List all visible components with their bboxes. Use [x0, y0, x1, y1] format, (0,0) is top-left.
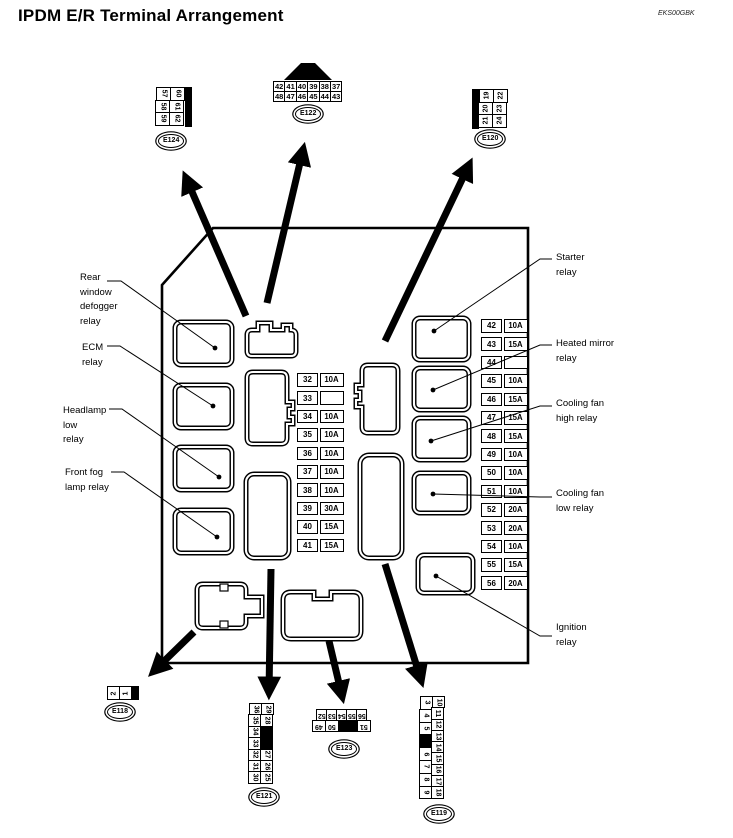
fuse-amp-rating: 10A — [504, 540, 528, 554]
ipdm-terminal-arrangement-diagram: IPDM E/R Terminal Arrangement EKS00GBK R… — [0, 0, 733, 838]
fuse-row: 5515A — [481, 558, 528, 572]
label-line: relay — [82, 356, 103, 371]
connector-e123-pin-grid: 5253545556 495051 — [312, 709, 371, 732]
e122-keyway-wedge — [284, 63, 332, 80]
fuse-amp-rating: 10A — [320, 373, 344, 387]
fuse-amp-rating: 10A — [320, 465, 344, 479]
fuse-number: 50 — [481, 466, 502, 480]
label-line: relay — [556, 352, 614, 367]
label-ecm-relay: ECMrelay — [82, 341, 103, 370]
fuse-number: 32 — [297, 373, 318, 387]
fuse-number: 56 — [481, 576, 502, 590]
fuse-amp-rating: 30A — [320, 502, 344, 516]
e123-row-bottom: 495051 — [312, 720, 371, 732]
fuse-number: 53 — [481, 521, 502, 535]
fuse-number: 39 — [297, 502, 318, 516]
fuse-number: 48 — [481, 429, 502, 443]
label-line: relay — [80, 315, 118, 330]
fuse-row: 3810A — [297, 483, 344, 497]
socket-top-center — [247, 323, 296, 356]
label-cooling-fan-high-relay: Cooling fanhigh relay — [556, 397, 604, 426]
relay-starter — [414, 318, 469, 360]
connector-label-e123: E123 — [331, 742, 357, 756]
fuse-amp-rating: 10A — [320, 447, 344, 461]
pin-cell: 19 — [479, 89, 494, 103]
fuse-amp-rating: 10A — [320, 428, 344, 442]
fuse-amp-rating: 10A — [504, 485, 528, 499]
label-line: Heated mirror — [556, 337, 614, 352]
fuse-row: 4715A — [481, 411, 528, 425]
label-line: Ignition — [556, 621, 587, 636]
fuse-row: 4510A — [481, 374, 528, 388]
connector-e118-pin-grid: 21 — [107, 686, 139, 700]
pin-cell: 24 — [492, 114, 507, 128]
fuse-row: 5010A — [481, 466, 528, 480]
arrow-to-e121 — [269, 569, 271, 692]
fuse-row: 4815A — [481, 429, 528, 443]
socket-left-keyed — [247, 372, 293, 444]
fuse-number: 36 — [297, 447, 318, 461]
leader-front-fog — [111, 472, 219, 539]
relay-ignition — [418, 555, 473, 593]
label-line: Rear — [80, 271, 118, 286]
e119-col-right: 101112131415161718 — [432, 696, 445, 799]
fuse-amp-rating: 10A — [320, 483, 344, 497]
pin-cell: 18 — [431, 786, 444, 798]
arrow-to-e123 — [329, 641, 342, 696]
keyway-cell — [260, 726, 273, 750]
fuse-amp-rating: 10A — [504, 374, 528, 388]
fuse-row: 3410A — [297, 410, 344, 424]
relay-ecm — [175, 385, 232, 428]
fuse-amp-rating: 15A — [504, 411, 528, 425]
leader-ecm — [107, 346, 215, 408]
relay-heated-mirror — [414, 368, 469, 410]
fuse-amp-rating: 15A — [504, 337, 528, 351]
label-rear-window-defogger-relay: Rearwindowdefoggerrelay — [80, 271, 118, 329]
pin-cell: 60 — [170, 87, 185, 101]
socket-bottom-center — [283, 592, 361, 639]
fuse-row: 3210A — [297, 373, 344, 387]
relay-cooling-fan-high — [414, 418, 469, 460]
connector-label-e119: E119 — [426, 807, 452, 821]
fuse-number: 55 — [481, 558, 502, 572]
fuse-amp-rating: 10A — [504, 466, 528, 480]
fuse-row: 4210A — [481, 319, 528, 333]
e124-keyway-bar — [185, 87, 192, 127]
fuse-amp-rating: 20A — [504, 576, 528, 590]
connector-label-e121: E121 — [251, 790, 277, 804]
arrow-to-e124 — [186, 178, 246, 316]
socket-bottom-left — [197, 584, 262, 628]
label-line: Starter — [556, 251, 585, 266]
fuse-row: 5320A — [481, 521, 528, 535]
pin-cell: 62 — [169, 112, 184, 126]
fuse-amp-rating: 15A — [320, 539, 344, 553]
fuse-row: 4315A — [481, 337, 528, 351]
e121-col-right: 2928272625 — [261, 703, 274, 784]
fuse-number: 52 — [481, 503, 502, 517]
fuse-row: 5410A — [481, 540, 528, 554]
label-starter-relay: Starterrelay — [556, 251, 585, 280]
fuse-amp-rating: 15A — [504, 558, 528, 572]
socket-right-tall — [360, 455, 402, 558]
fuse-row: 3610A — [297, 447, 344, 461]
connector-e124-pin-grid: 575859 606162 — [156, 87, 192, 127]
fuse-number: 38 — [297, 483, 318, 497]
label-front-fog-lamp-relay: Front foglamp relay — [65, 466, 109, 495]
e124-col-right: 606162 — [170, 87, 185, 126]
fuse-amp-rating: 15A — [504, 393, 528, 407]
pin-cell: 59 — [155, 112, 170, 126]
fuse-amp-rating: 15A — [320, 520, 344, 534]
fuse-number: 34 — [297, 410, 318, 424]
pin-cell: 21 — [478, 114, 493, 128]
fuse-row: 3710A — [297, 465, 344, 479]
fuse-number: 51 — [481, 485, 502, 499]
fuse-amp-rating: 20A — [504, 503, 528, 517]
relay-rear-window-defogger — [175, 322, 232, 365]
doc-code: EKS00GBK — [658, 10, 695, 17]
relay-front-fog-lamp — [175, 510, 232, 553]
keyway-cell — [131, 686, 139, 700]
pin-cell: 43 — [330, 91, 342, 102]
label-headlamp-low-relay: Headlamplowrelay — [63, 404, 106, 448]
fuse-number: 45 — [481, 374, 502, 388]
fuse-number: 54 — [481, 540, 502, 554]
label-ignition-relay: Ignitionrelay — [556, 621, 587, 650]
relay-cooling-fan-low — [414, 473, 469, 513]
fuse-amp-rating — [504, 356, 528, 370]
label-line: low relay — [556, 502, 604, 517]
connector-e120-pin-grid: 192021 222324 — [472, 89, 508, 129]
leader-headlamp-low — [109, 409, 221, 479]
connector-label-e124: E124 — [158, 134, 184, 148]
fuse-number: 46 — [481, 393, 502, 407]
fuse-row: 3510A — [297, 428, 344, 442]
label-line: relay — [556, 636, 587, 651]
label-cooling-fan-low-relay: Cooling fanlow relay — [556, 487, 604, 516]
connector-label-e120: E120 — [477, 132, 503, 146]
fuse-table-left: 3210A333410A3510A3610A3710A3810A3930A401… — [297, 373, 344, 557]
leader-rear-window-defogger — [107, 281, 217, 350]
fuse-row: 5110A — [481, 485, 528, 499]
keyway-cell — [338, 720, 358, 732]
pin-cell: 51 — [357, 720, 371, 732]
connector-e119-pin-grid: 3456789 101112131415161718 — [420, 696, 445, 799]
label-line: ECM — [82, 341, 103, 356]
label-line: Cooling fan — [556, 397, 604, 412]
pin-cell: 23 — [492, 102, 507, 116]
fuse-number: 40 — [297, 520, 318, 534]
pin-cell: 50 — [325, 720, 339, 732]
pin-cell: 20 — [478, 102, 493, 116]
page-title: IPDM E/R Terminal Arrangement — [18, 6, 284, 26]
label-line: high relay — [556, 412, 604, 427]
fuse-amp-rating — [320, 391, 344, 405]
fuse-row: 3930A — [297, 502, 344, 516]
fuse-amp-rating: 10A — [504, 448, 528, 462]
pin-cell: 25 — [260, 771, 273, 783]
socket-left-tall — [246, 474, 289, 558]
fuse-number: 44 — [481, 356, 502, 370]
fuse-row: 4015A — [297, 520, 344, 534]
pin-cell: 49 — [312, 720, 326, 732]
relay-headlamp-low — [175, 447, 232, 490]
fuse-number: 35 — [297, 428, 318, 442]
arrow-to-e122 — [267, 150, 303, 303]
pin-cell: 61 — [169, 100, 184, 114]
e122-row-bottom: 484746454443 — [273, 91, 342, 102]
fuse-row: 5220A — [481, 503, 528, 517]
connector-label-e118: E118 — [107, 705, 133, 719]
fuse-number: 47 — [481, 411, 502, 425]
arrow-to-e120 — [385, 165, 469, 341]
e120-col-right: 222324 — [493, 89, 508, 128]
fuse-amp-rating: 10A — [320, 410, 344, 424]
socket-right-keyed — [356, 365, 398, 433]
fuse-row: 4910A — [481, 448, 528, 462]
label-line: Cooling fan — [556, 487, 604, 502]
label-line: Headlamp — [63, 404, 106, 419]
fuse-row: 44 — [481, 356, 528, 370]
connector-e121-pin-grid: 36353433323130 2928272625 — [249, 703, 274, 784]
label-line: lamp relay — [65, 481, 109, 496]
fuse-table-right: 4210A4315A444510A4615A4715A4815A4910A501… — [481, 319, 528, 595]
connector-label-e122: E122 — [295, 107, 321, 121]
label-line: Front fog — [65, 466, 109, 481]
arrow-to-e119 — [385, 564, 421, 680]
fuse-number: 42 — [481, 319, 502, 333]
pin-cell: 58 — [155, 100, 170, 114]
arrow-to-e118 — [154, 632, 194, 671]
connector-e122-pin-grid: 424140393837 484746454443 — [273, 81, 342, 102]
fuse-amp-rating: 15A — [504, 429, 528, 443]
fuse-row: 4115A — [297, 539, 344, 553]
fuse-number: 37 — [297, 465, 318, 479]
pin-cell: 22 — [493, 89, 508, 103]
fuse-row: 5620A — [481, 576, 528, 590]
fuse-number: 33 — [297, 391, 318, 405]
ipdm-box-outline — [162, 228, 528, 663]
fuse-amp-rating: 20A — [504, 521, 528, 535]
pin-cell: 57 — [156, 87, 171, 101]
label-line: window — [80, 286, 118, 301]
label-line: low — [63, 419, 106, 434]
label-line: relay — [63, 433, 106, 448]
fuse-row: 4615A — [481, 393, 528, 407]
label-line: defogger — [80, 300, 118, 315]
fuse-number: 43 — [481, 337, 502, 351]
fuse-number: 49 — [481, 448, 502, 462]
fuse-row: 33 — [297, 391, 344, 405]
fuse-amp-rating: 10A — [504, 319, 528, 333]
fuse-number: 41 — [297, 539, 318, 553]
label-heated-mirror-relay: Heated mirrorrelay — [556, 337, 614, 366]
label-line: relay — [556, 266, 585, 281]
